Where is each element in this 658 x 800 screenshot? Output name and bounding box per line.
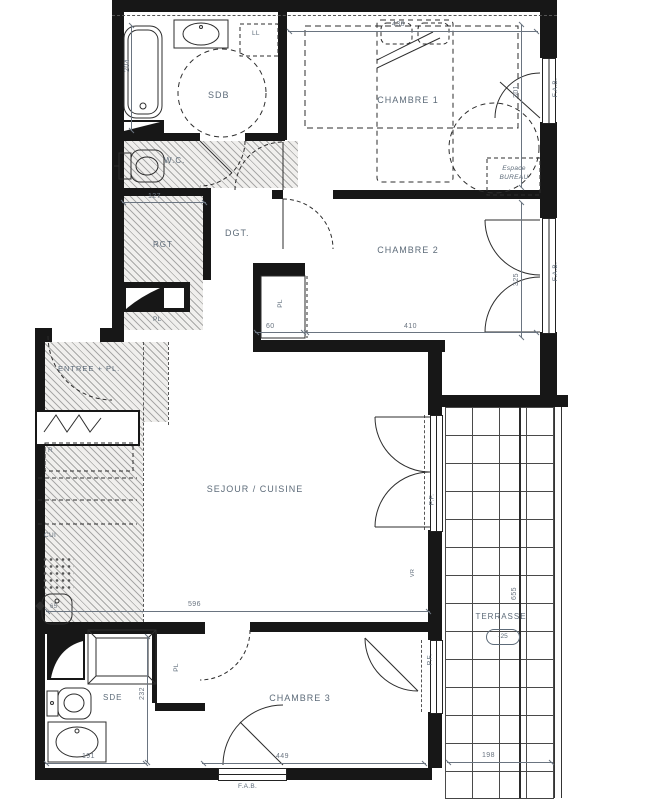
chambre3-pf-arc xyxy=(365,638,418,691)
dim-sejour: 596 xyxy=(188,601,201,608)
room-label-chambre2: CHAMBRE 2 xyxy=(353,245,463,255)
room-label-dgt: DGT. xyxy=(225,228,250,238)
sdb-sink xyxy=(174,20,228,48)
lave-linge-label: LL xyxy=(252,30,260,37)
sejour-door-arc-2 xyxy=(375,472,430,527)
chambre2-window-arc-1 xyxy=(485,220,540,275)
wall-sejour-top xyxy=(253,340,445,352)
fab-chambre3-label: F.A.B. xyxy=(238,783,257,790)
bathtub xyxy=(124,26,162,118)
sde-sink xyxy=(48,722,106,762)
chambre1-furniture-zone xyxy=(305,26,518,128)
wall-entry-b xyxy=(100,328,124,342)
fab-chambre2-label: F.A.B. xyxy=(552,262,559,281)
wall-ch3-right-b xyxy=(428,712,442,768)
wall-rgt-right xyxy=(203,196,211,280)
dim-placard: 60 xyxy=(266,323,275,330)
sde-toilet-tank xyxy=(47,691,58,716)
wall-sde-pl-divider xyxy=(152,634,157,703)
dim-line-sejour xyxy=(46,611,430,612)
terrasse-railing xyxy=(554,407,562,798)
washing-machine xyxy=(240,24,278,56)
fab-chambre1-label: F.A.B. xyxy=(552,78,559,97)
dim-wc: 127 xyxy=(148,193,161,200)
pl-couloir-label: PL xyxy=(153,316,162,323)
chambre2-door-arc xyxy=(283,199,333,249)
dim-chambre3: 449 xyxy=(276,753,289,760)
dim-chambre1-l: 438 xyxy=(392,21,405,28)
window-fab-chambre3 xyxy=(218,768,287,781)
sejour-opening-dashed xyxy=(424,415,425,530)
wall-sdb-bottom-b xyxy=(245,133,285,141)
wall-entry-a xyxy=(35,328,52,342)
wall-pl2-left xyxy=(253,263,261,340)
dim-sde-l: 191 xyxy=(82,753,95,760)
parapet-dashed-line xyxy=(112,15,557,16)
window-pf-sejour xyxy=(430,415,443,532)
wall-right-3 xyxy=(540,332,557,398)
pl-chambre2-label: PL xyxy=(277,299,284,308)
dim-line-sde xyxy=(45,763,147,764)
dim-terrasse-l: 198 xyxy=(482,752,495,759)
cuisine-label: CUI xyxy=(44,532,56,539)
room-label-chambre3: CHAMBRE 3 xyxy=(245,693,355,703)
dim-chambre1-h: 301 xyxy=(513,85,520,98)
pf-chambre3-label: P.F. xyxy=(426,654,433,666)
terrasse-tiles xyxy=(445,407,554,799)
volet-roulant-label: VR xyxy=(410,569,416,577)
wall-sejour-right-b xyxy=(428,530,442,632)
dim-line-chambre1-h xyxy=(521,24,522,188)
dim-baignoire: 204 xyxy=(124,59,131,72)
window-pf-chambre3 xyxy=(430,640,443,714)
wc-floor-hatch xyxy=(122,141,298,188)
wall-ch1-ch2-a xyxy=(272,190,283,199)
chambre3-window-arc xyxy=(223,705,283,765)
dim-line-placard xyxy=(255,332,305,333)
chambre3-entry-arc xyxy=(200,630,250,680)
bathtub-step xyxy=(122,120,164,133)
wall-wc-bottom xyxy=(112,188,211,196)
room-label-sde: SDE xyxy=(103,693,122,702)
dim-line-chambre1 xyxy=(288,31,538,32)
room-label-chambre1: CHAMBRE 1 xyxy=(353,95,463,105)
wall-left-low xyxy=(35,622,45,768)
refrigerateur-label: R xyxy=(48,447,53,454)
terrasse-level-badge: -25 xyxy=(486,629,520,645)
wall-terrasse-top xyxy=(442,395,568,407)
room-label-rgt: RGT xyxy=(153,240,173,249)
wall-right-2 xyxy=(540,122,557,218)
chambre3-opening-dashed xyxy=(421,640,422,712)
wall-ch3-right-a xyxy=(428,632,442,640)
sejour-door-arc-1 xyxy=(375,417,430,472)
wall-pl2-top xyxy=(255,263,305,276)
entree-closet-dashed xyxy=(168,342,169,425)
wall-sdb-right xyxy=(278,12,287,140)
espace-bureau-label-2: BUREAU xyxy=(490,174,538,181)
electrical-panel xyxy=(35,410,140,446)
dim-evier: 65 xyxy=(50,604,57,610)
dim-line-chambre2 xyxy=(305,332,538,333)
wall-right-1 xyxy=(540,12,557,58)
espace-bureau-label-1: Espace xyxy=(490,165,538,172)
wall-sdb-bottom-a xyxy=(122,133,200,141)
dim-line-wc xyxy=(122,202,206,203)
dim-chambre2-h: 325 xyxy=(513,273,520,286)
dim-line-sde-h xyxy=(147,636,148,763)
wall-pl3-bottom xyxy=(155,703,205,711)
dim-terrasse-h: 655 xyxy=(511,587,518,600)
duct-box xyxy=(122,282,190,312)
dim-line-baignoire xyxy=(131,25,132,131)
wall-ch1-ch2-b xyxy=(333,190,540,199)
floor-plan: SDB CHAMBRE 1 W.C. DGT. CHAMBRE 2 RGT EN… xyxy=(0,0,658,800)
water-heater xyxy=(47,632,85,680)
dim-sde-h: 232 xyxy=(139,687,146,700)
wall-bottom-a xyxy=(35,768,218,780)
shower xyxy=(88,630,156,684)
pl-chambre3-label: PL xyxy=(173,663,180,672)
kitchen-boundary-dashed xyxy=(143,342,144,622)
wall-sejour-right-a xyxy=(428,352,442,415)
pf-sejour-label: P.F. xyxy=(428,494,435,506)
hob xyxy=(42,556,74,592)
terrasse-dim-line xyxy=(519,407,521,798)
wall-ch3-top xyxy=(250,622,432,632)
wall-top xyxy=(112,0,557,12)
dim-chambre2-l: 410 xyxy=(404,323,417,330)
room-label-terrasse: TERRASSE xyxy=(465,612,537,621)
kitchen-floor-hatch xyxy=(45,422,143,622)
room-label-sdb: SDB xyxy=(208,90,230,100)
room-label-wc: W.C. xyxy=(164,156,185,165)
wall-left-mid-a xyxy=(35,342,45,410)
dim-line-chambre2-h xyxy=(521,202,522,338)
room-label-entree: ENTREE + PL. xyxy=(58,364,120,373)
room-label-sejour: SEJOUR / CUISINE xyxy=(175,484,335,494)
dim-line-terrasse xyxy=(447,762,553,763)
dim-line-chambre3 xyxy=(202,763,426,764)
wall-bottom-b xyxy=(285,768,432,780)
